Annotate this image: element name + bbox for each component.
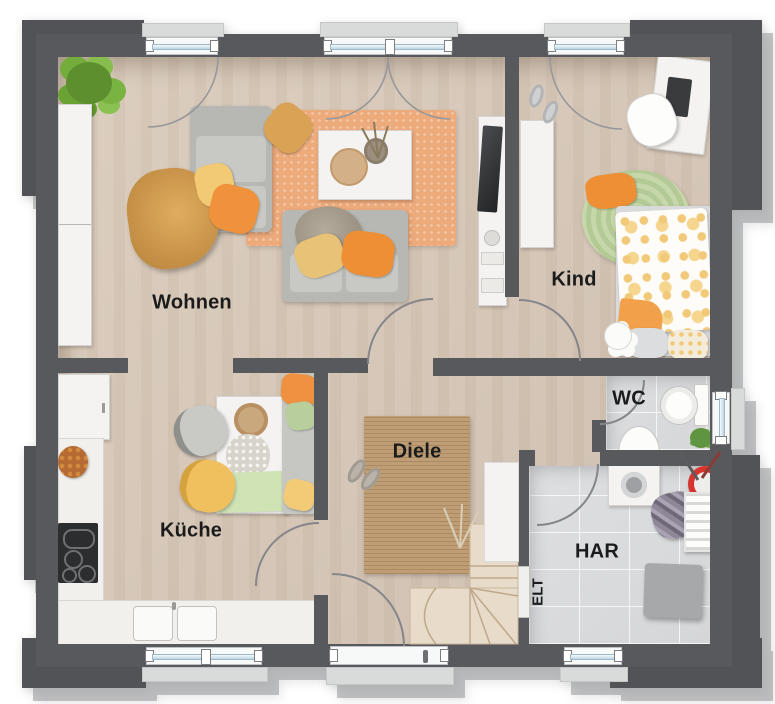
book-stack: [481, 252, 504, 265]
room-label-wc: WC: [612, 388, 646, 411]
sill: [544, 23, 630, 37]
wall-kueche-diele-lower: [314, 595, 328, 644]
room-label-kueche: Küche: [160, 520, 222, 543]
kind-wardrobe: [520, 120, 554, 248]
wall-west: [36, 34, 58, 667]
decor-tray: [330, 148, 368, 186]
toilet-bowl: [660, 386, 698, 425]
washing-machine: [608, 464, 660, 506]
window-glass: [719, 398, 725, 438]
stair-upper-flight: [484, 462, 519, 562]
front-door: [330, 646, 448, 665]
cabinet-handle: [102, 403, 105, 413]
faucet: [172, 602, 176, 610]
window-glass: [554, 44, 618, 50]
sill: [731, 388, 745, 450]
wc-plant: [690, 428, 712, 448]
wall-wc-har-a: [519, 450, 535, 466]
window-handle: [385, 39, 395, 55]
flower-side-table: [604, 322, 632, 350]
cooktop: [58, 523, 98, 583]
cabinet-divider: [59, 224, 91, 225]
elt-cabinet: [516, 566, 530, 618]
storage-box: [643, 563, 703, 619]
room-label-wohnen: Wohnen: [152, 292, 232, 315]
sill: [142, 667, 268, 682]
wall-wc-west: [592, 420, 606, 452]
living-cabinet: [58, 104, 92, 346]
wall-wc-har-b: [600, 450, 710, 466]
window-kueche: [146, 647, 262, 665]
floor-plan: Wohnen Kind Küche Diele WC HAR ELT: [0, 0, 775, 704]
bed-pillow: [626, 328, 668, 358]
fruit-bowl: [58, 446, 88, 478]
table-tray: [234, 403, 268, 437]
wall-kind-south: [433, 358, 710, 376]
room-label-diele: Diele: [393, 441, 442, 464]
room-label-elt: ELT: [530, 578, 547, 606]
window-wohnen-left: [146, 37, 218, 55]
door-handle: [423, 650, 428, 663]
wall-kueche-diele-upper: [314, 372, 328, 520]
window-handle: [201, 649, 211, 665]
wall-east: [710, 34, 732, 667]
burner: [63, 529, 95, 549]
window-wc: [712, 392, 730, 444]
entry-step: [326, 667, 454, 685]
room-label-har: HAR: [575, 541, 619, 564]
kitchen-tall-cabinet: [58, 374, 110, 440]
room-label-kind: Kind: [551, 269, 596, 292]
window-glass: [570, 654, 616, 660]
window-glass: [152, 44, 212, 50]
sill: [320, 22, 458, 37]
window-kind: [548, 37, 624, 55]
washer-door: [621, 472, 647, 498]
wall-wohnen-kind: [505, 57, 519, 297]
bench-pillow-green: [284, 400, 317, 432]
sink-basin: [177, 606, 217, 641]
sill: [560, 667, 628, 682]
wall-wohnen-kueche-b: [233, 358, 368, 373]
sill: [142, 23, 224, 37]
burner: [78, 565, 96, 583]
sink-basin: [133, 606, 173, 641]
bed-pillow-dotted: [668, 330, 708, 360]
window-har: [564, 647, 622, 665]
wall-wohnen-kueche-a: [58, 358, 128, 373]
vase: [364, 138, 388, 164]
burner: [62, 568, 77, 583]
french-window-wohnen: [324, 37, 452, 55]
speaker: [484, 230, 500, 246]
palm-plant: [66, 62, 112, 104]
burner: [64, 550, 83, 569]
building: Wohnen Kind Küche Diele WC HAR ELT: [0, 0, 775, 704]
book-stack: [481, 278, 504, 293]
